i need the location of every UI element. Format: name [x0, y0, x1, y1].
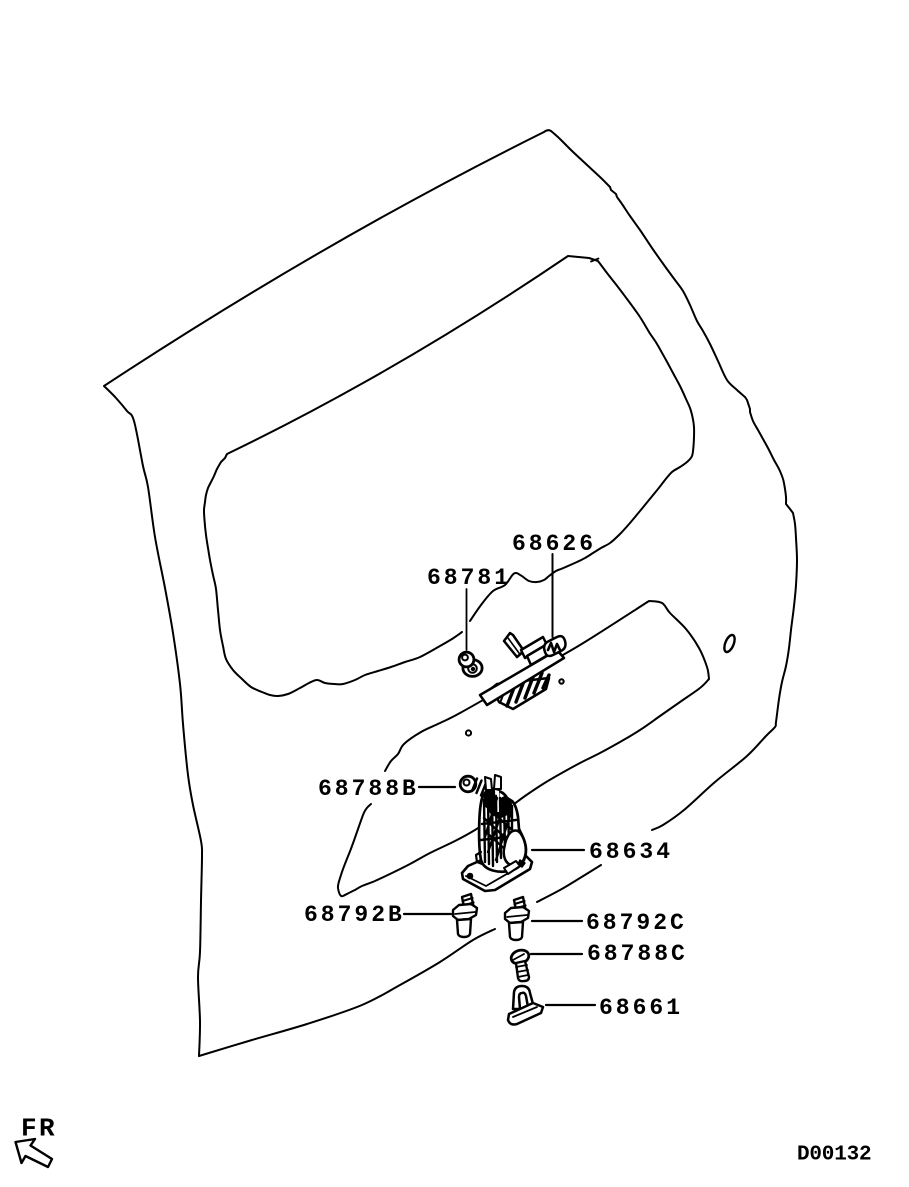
svg-text:68792C: 68792C	[586, 910, 687, 936]
svg-text:D00132: D00132	[797, 1144, 871, 1167]
svg-text:68788B: 68788B	[318, 776, 419, 802]
svg-text:68634: 68634	[589, 839, 673, 865]
svg-text:68626: 68626	[512, 531, 596, 557]
svg-text:68792B: 68792B	[304, 902, 405, 928]
svg-text:68781: 68781	[427, 565, 511, 591]
svg-text:FR: FR	[21, 1114, 57, 1144]
svg-text:68661: 68661	[599, 995, 683, 1021]
svg-text:68788C: 68788C	[587, 941, 688, 967]
